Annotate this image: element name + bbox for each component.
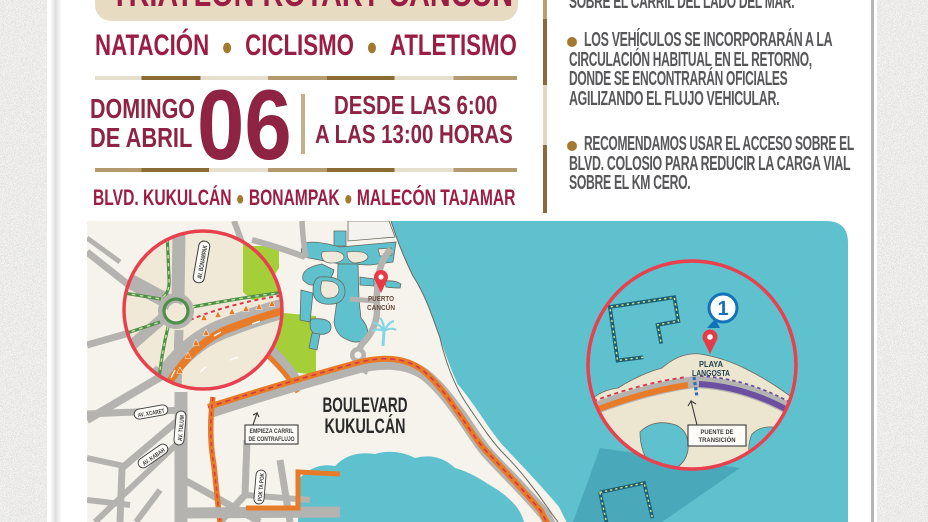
svg-text:CANCÚN: CANCÚN (367, 303, 395, 312)
svg-text:DE CONTRAFLUJO: DE CONTRAFLUJO (249, 436, 295, 443)
svg-text:1: 1 (717, 298, 728, 320)
svg-text:EMPIEZA CARRIL: EMPIEZA CARRIL (250, 428, 294, 435)
svg-text:LANGOSTA: LANGOSTA (692, 369, 730, 378)
svg-text:BOULEVARD: BOULEVARD (323, 394, 408, 417)
svg-text:KUKULCÁN: KUKULCÁN (325, 415, 406, 438)
svg-text:PLAYA: PLAYA (699, 360, 723, 369)
svg-text:TRANSICIÓN: TRANSICIÓN (699, 435, 736, 444)
svg-text:PUENTE DE: PUENTE DE (701, 429, 735, 436)
svg-text:PUERTO: PUERTO (368, 294, 394, 303)
